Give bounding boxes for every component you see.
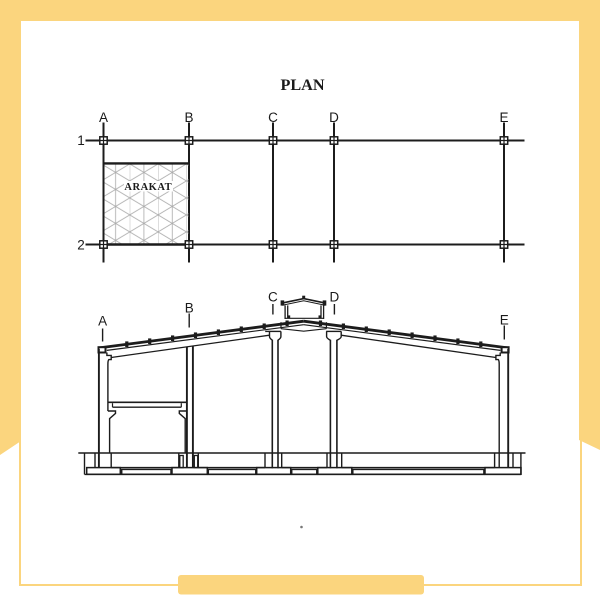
svg-text:2: 2 xyxy=(77,238,85,253)
svg-text:B: B xyxy=(185,301,194,316)
svg-text:C: C xyxy=(268,110,278,125)
svg-text:PLAN: PLAN xyxy=(280,76,324,94)
svg-text:D: D xyxy=(330,290,340,305)
svg-text:D: D xyxy=(329,110,339,125)
svg-text:A: A xyxy=(98,314,107,329)
svg-text:E: E xyxy=(500,313,509,328)
svg-text:E: E xyxy=(499,110,508,125)
svg-text:ARAKAT: ARAKAT xyxy=(124,182,172,193)
svg-text:C: C xyxy=(268,290,278,305)
svg-text:A: A xyxy=(99,110,108,125)
svg-text:1: 1 xyxy=(77,133,85,148)
svg-text:B: B xyxy=(184,110,193,125)
